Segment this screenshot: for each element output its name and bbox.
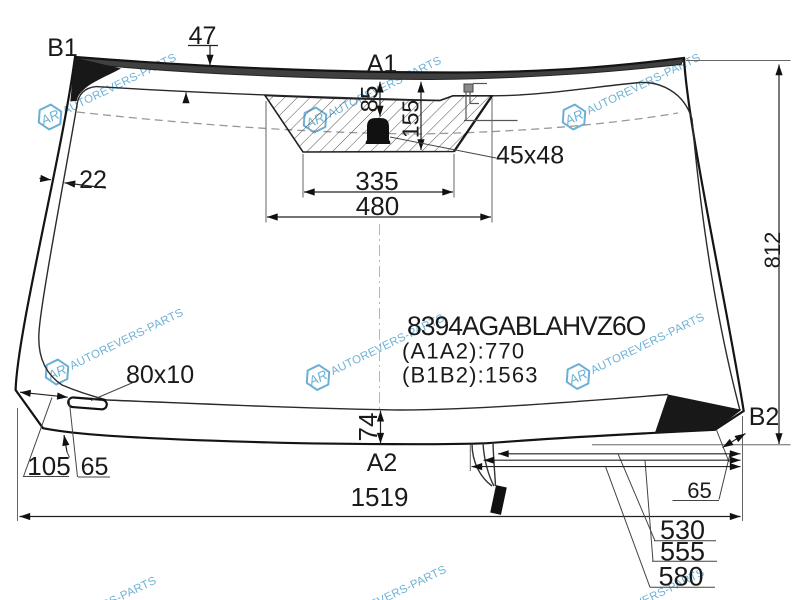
svg-text:155: 155 — [398, 100, 424, 138]
svg-text:B2: B2 — [749, 403, 780, 431]
svg-text:(A1A2):770: (A1A2):770 — [402, 339, 525, 364]
svg-text:A2: A2 — [367, 449, 398, 477]
svg-text:812: 812 — [760, 232, 785, 269]
svg-text:A1: A1 — [367, 50, 398, 78]
svg-text:74: 74 — [353, 413, 383, 442]
svg-text:22: 22 — [79, 166, 107, 194]
svg-text:8394AGABLAHVZ6O: 8394AGABLAHVZ6O — [407, 311, 646, 341]
svg-text:65: 65 — [687, 478, 711, 503]
svg-text:85: 85 — [357, 86, 384, 113]
svg-text:1519: 1519 — [351, 482, 409, 512]
svg-text:45x48: 45x48 — [496, 142, 564, 170]
svg-text:105: 105 — [27, 451, 70, 481]
svg-text:65: 65 — [81, 453, 109, 481]
svg-text:580: 580 — [658, 562, 703, 592]
svg-text:B1: B1 — [47, 34, 78, 62]
svg-text:(B1B2):1563: (B1B2):1563 — [402, 363, 539, 388]
svg-text:480: 480 — [356, 191, 399, 221]
svg-text:80x10: 80x10 — [126, 361, 194, 389]
svg-text:47: 47 — [189, 22, 217, 50]
